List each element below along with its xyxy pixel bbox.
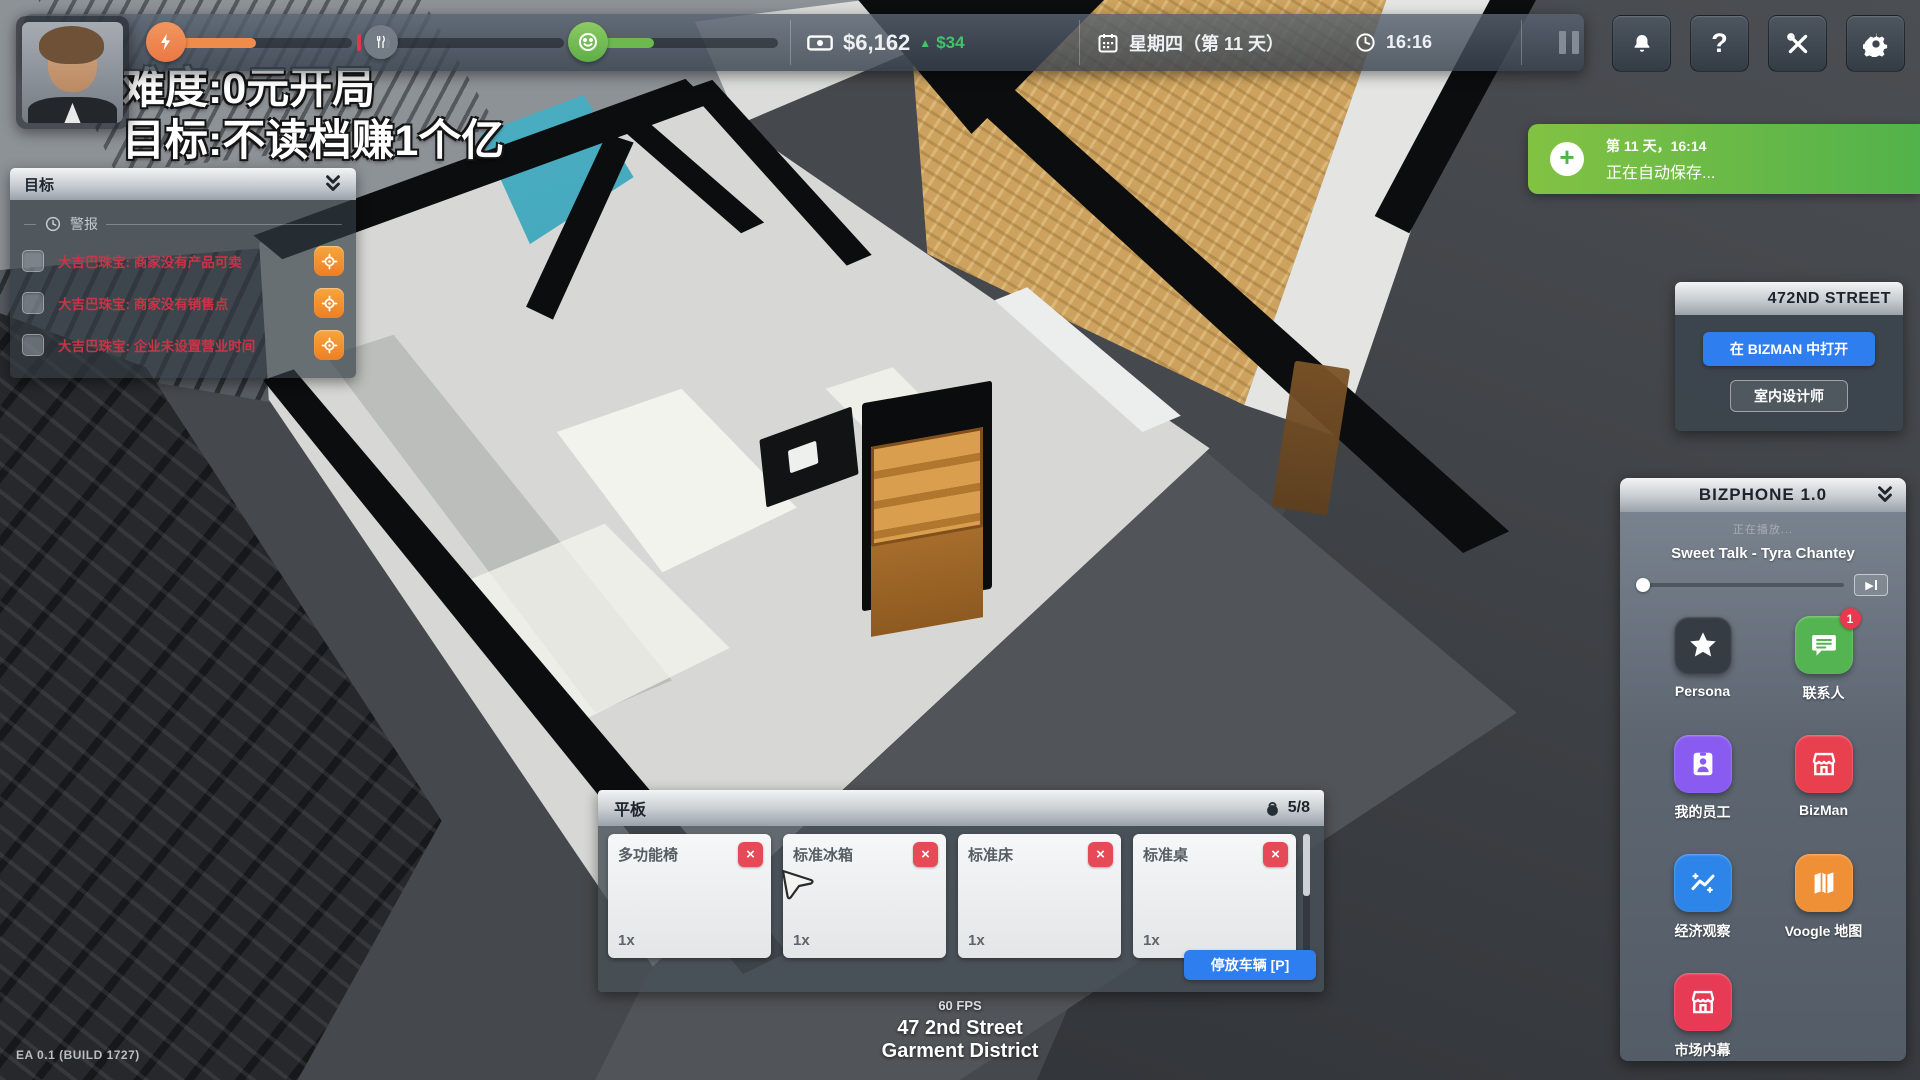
- scene-door-interior: [871, 427, 983, 637]
- time-value: 16:16: [1386, 32, 1432, 53]
- calendar-icon: [1096, 31, 1120, 55]
- overlay-line-difficulty: 难度:0元开局: [122, 64, 504, 116]
- settings-button[interactable]: [1846, 15, 1905, 72]
- alerts-section-label: 警报: [70, 214, 98, 234]
- money-display: $6,162 ▲ $34: [806, 14, 965, 71]
- fps-counter: 60 FPS: [760, 998, 1160, 1013]
- open-in-bizman-button[interactable]: 在 BIZMAN 中打开: [1703, 332, 1875, 366]
- food-icon: [364, 25, 398, 59]
- slider-knob[interactable]: [1636, 578, 1650, 592]
- trend-chart-icon: [1688, 868, 1718, 898]
- goals-body: 警报 大吉巴珠宝: 商家没有产品可卖 大吉巴珠宝: 商家没有销售点: [10, 200, 356, 378]
- alarm-clock-icon: [44, 215, 62, 233]
- now-playing-label: 正在播放...: [1620, 521, 1906, 537]
- player-avatar[interactable]: [16, 16, 129, 129]
- item-quantity: 1x: [968, 932, 985, 949]
- collapse-chevron-icon[interactable]: [1874, 485, 1896, 505]
- autosave-toast: + 第 11 天，16:14 正在自动保存...: [1528, 124, 1920, 194]
- bizphone-body: 正在播放... Sweet Talk - Tyra Chantey ▶ Pers…: [1620, 512, 1906, 1061]
- capacity-value: 5/8: [1288, 799, 1310, 817]
- bizphone-header: BIZPHONE 1.0: [1620, 478, 1906, 512]
- mouse-cursor: [778, 866, 818, 906]
- system-buttons: ?: [1612, 15, 1905, 72]
- bell-icon: [1630, 32, 1654, 56]
- notification-badge: 1: [1840, 608, 1861, 629]
- track-progress-slider[interactable]: [1638, 583, 1844, 587]
- alert-checkbox[interactable]: [22, 250, 44, 272]
- location-footer: 60 FPS 47 2nd Street Garment District: [760, 998, 1160, 1063]
- id-card-icon: [1688, 749, 1718, 779]
- money-delta: ▲ $34: [919, 33, 964, 53]
- notifications-button[interactable]: [1612, 15, 1671, 72]
- target-icon: [320, 336, 339, 355]
- remove-item-button[interactable]: ×: [738, 842, 763, 867]
- scene-mat-card: [788, 441, 819, 474]
- bizphone-title: BIZPHONE 1.0: [1699, 485, 1827, 505]
- money-value: $6,162: [843, 30, 910, 56]
- time-display: 16:16: [1354, 14, 1432, 71]
- pause-button[interactable]: [1535, 31, 1603, 55]
- app-label: Voogle 地图: [1785, 921, 1863, 941]
- app-persona[interactable]: Persona: [1648, 616, 1758, 703]
- alert-row: 大吉巴珠宝: 商家没有产品可卖: [10, 240, 356, 282]
- app-label: 联系人: [1803, 683, 1845, 703]
- alert-locate-button[interactable]: [314, 330, 344, 360]
- weight-icon: [1263, 799, 1282, 818]
- next-bar-icon: [1875, 580, 1877, 590]
- target-icon: [320, 252, 339, 271]
- toast-text: 第 11 天，16:14 正在自动保存...: [1606, 136, 1715, 183]
- build-version: EA 0.1 (BUILD 1727): [16, 1048, 140, 1062]
- hunger-bar: [386, 38, 564, 48]
- avatar-portrait: [22, 22, 123, 123]
- goals-panel: 目标 警报 大吉巴珠宝: 商家没有产品可卖: [10, 168, 356, 378]
- storefront-icon: [1809, 749, 1839, 779]
- report-bug-button[interactable]: [1768, 15, 1827, 72]
- delta-value: $34: [936, 33, 964, 53]
- vehicle-inventory-panel: 平板 5/8 多功能椅 × 1x 标准冰箱 × 1x 标准床: [598, 790, 1324, 992]
- maps-app-icon: [1795, 854, 1853, 912]
- scene-open-door: [862, 381, 992, 612]
- bizphone-panel: BIZPHONE 1.0 正在播放... Sweet Talk - Tyra C…: [1620, 478, 1906, 1061]
- divider: [106, 224, 342, 225]
- app-grid: Persona 1 联系人: [1620, 598, 1906, 1060]
- happiness-icon: [568, 22, 608, 62]
- app-label: Persona: [1675, 683, 1730, 699]
- toast-timestamp: 第 11 天，16:14: [1606, 136, 1715, 156]
- remove-item-button[interactable]: ×: [913, 842, 938, 867]
- app-label: 经济观察: [1675, 921, 1731, 941]
- alert-locate-button[interactable]: [314, 246, 344, 276]
- interior-designer-button[interactable]: 室内设计师: [1730, 380, 1848, 412]
- cash-icon: [806, 29, 834, 57]
- scene-shelf-crate: [871, 427, 983, 547]
- item-quantity: 1x: [618, 932, 635, 949]
- target-icon: [320, 294, 339, 313]
- alert-checkbox[interactable]: [22, 292, 44, 314]
- vehicle-panel-header: 平板 5/8: [598, 790, 1324, 826]
- goals-title: 目标: [24, 174, 54, 195]
- alert-text: 大吉巴珠宝: 商家没有产品可卖: [58, 251, 304, 271]
- alert-checkbox[interactable]: [22, 334, 44, 356]
- remove-item-button[interactable]: ×: [1263, 842, 1288, 867]
- clock-icon: [1354, 31, 1377, 54]
- music-player: ▶: [1638, 574, 1888, 596]
- storefront-icon: [1688, 987, 1718, 1017]
- persona-app-icon: [1674, 616, 1732, 674]
- divider: [24, 224, 36, 225]
- divider: [790, 20, 791, 65]
- economy-app-icon: [1674, 854, 1732, 912]
- happiness-bar: [596, 38, 778, 48]
- district-name: Garment District: [760, 1040, 1160, 1063]
- inventory-item-card[interactable]: 多功能椅 × 1x: [608, 834, 771, 958]
- goals-header: 目标: [10, 168, 356, 200]
- bizman-app-icon: [1795, 735, 1853, 793]
- street-panel-title: 472ND STREET: [1675, 282, 1903, 315]
- street-panel-body: 在 BIZMAN 中打开 室内设计师: [1675, 315, 1903, 431]
- energy-bar: [170, 38, 352, 48]
- delta-up-icon: ▲: [919, 36, 931, 50]
- inventory-item-card[interactable]: 标准桌 × 1x: [1133, 834, 1296, 958]
- divider: [1521, 20, 1522, 65]
- top-hud-bar: $6,162 ▲ $34 星期四（第 11 天） 16:16: [24, 14, 1584, 71]
- game-screen: $6,162 ▲ $34 星期四（第 11 天） 16:16: [0, 0, 1920, 1080]
- alerts-section-header: 警报: [24, 214, 342, 234]
- item-quantity: 1x: [793, 932, 810, 949]
- alert-text: 大吉巴珠宝: 企业未设置营业时间: [58, 335, 304, 355]
- chat-bubble-icon: [1809, 630, 1839, 660]
- remove-item-button[interactable]: ×: [1088, 842, 1113, 867]
- gear-icon: [1863, 31, 1889, 57]
- overlay-line-goal: 目标:不读档赚1个亿: [122, 116, 504, 168]
- app-bizman[interactable]: BizMan: [1769, 735, 1879, 822]
- next-track-button[interactable]: ▶: [1854, 574, 1888, 596]
- scrollbar-thumb[interactable]: [1303, 834, 1310, 896]
- employees-app-icon: [1674, 735, 1732, 793]
- app-my-employees[interactable]: 我的员工: [1648, 735, 1758, 822]
- play-icon: ▶: [1865, 579, 1873, 592]
- hunger-warning-tick: [357, 34, 361, 51]
- inventory-scrollbar[interactable]: [1303, 834, 1310, 958]
- app-economy-watch[interactable]: 经济观察: [1648, 854, 1758, 941]
- date-display: 星期四（第 11 天）: [1096, 14, 1284, 71]
- map-icon: [1809, 868, 1839, 898]
- app-voogle-maps[interactable]: Voogle 地图: [1769, 854, 1879, 941]
- date-value: 星期四（第 11 天）: [1129, 30, 1284, 56]
- vehicle-panel-body: 多功能椅 × 1x 标准冰箱 × 1x 标准床 × 1x 标准桌 × 1x 停放…: [598, 826, 1324, 992]
- park-vehicle-button[interactable]: 停放车辆 [P]: [1184, 950, 1316, 980]
- star-icon: [1687, 629, 1719, 661]
- tools-bug-icon: [1785, 31, 1811, 57]
- street-address: 47 2nd Street: [760, 1017, 1160, 1040]
- market-insider-app-icon: [1674, 973, 1732, 1031]
- divider: [1079, 20, 1080, 65]
- vehicle-name: 平板: [614, 796, 646, 820]
- track-title: Sweet Talk - Tyra Chantey: [1620, 545, 1906, 562]
- app-contacts[interactable]: 1 联系人: [1769, 616, 1879, 703]
- alert-text: 大吉巴珠宝: 商家没有销售点: [58, 293, 304, 313]
- app-market-insider[interactable]: 市场内幕: [1648, 973, 1758, 1060]
- energy-icon: [146, 22, 186, 62]
- alert-row: 大吉巴珠宝: 企业未设置营业时间: [10, 324, 356, 366]
- challenge-overlay: 难度:0元开局 目标:不读档赚1个亿: [122, 64, 504, 167]
- avatar-hair: [39, 26, 104, 64]
- collapse-chevron-icon[interactable]: [322, 174, 344, 194]
- inventory-item-card[interactable]: 标准床 × 1x: [958, 834, 1121, 958]
- app-label: BizMan: [1799, 802, 1848, 818]
- item-quantity: 1x: [1143, 932, 1160, 949]
- capacity-display: 5/8: [1263, 799, 1310, 818]
- app-label: 市场内幕: [1675, 1040, 1731, 1060]
- question-icon: ?: [1711, 28, 1728, 59]
- help-button[interactable]: ?: [1690, 15, 1749, 72]
- toast-message: 正在自动保存...: [1606, 159, 1715, 183]
- alert-row: 大吉巴珠宝: 商家没有销售点: [10, 282, 356, 324]
- alert-locate-button[interactable]: [314, 288, 344, 318]
- plus-icon: +: [1550, 142, 1584, 176]
- app-label: 我的员工: [1675, 802, 1731, 822]
- street-panel: 472ND STREET 在 BIZMAN 中打开 室内设计师: [1675, 282, 1903, 431]
